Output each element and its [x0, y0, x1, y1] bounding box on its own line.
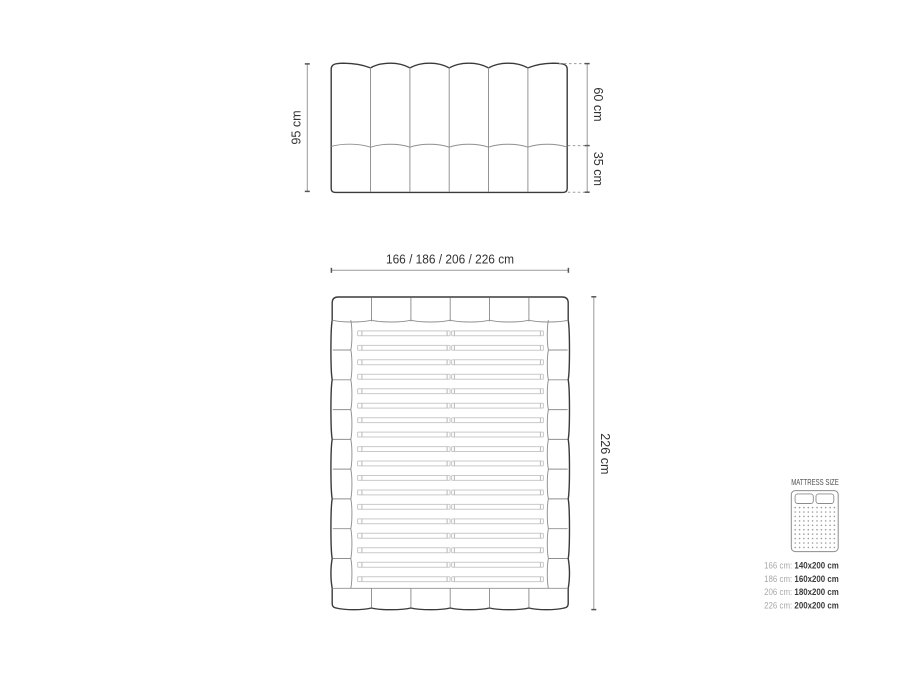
- svg-text:35 cm: 35 cm: [591, 152, 606, 186]
- svg-text:206 cm: 180x200 cm: 206 cm: 180x200 cm: [764, 587, 839, 598]
- svg-text:MATTRESS SIZE: MATTRESS SIZE: [791, 477, 839, 487]
- svg-text:166 / 186 / 206 / 226 cm: 166 / 186 / 206 / 226 cm: [386, 252, 514, 267]
- svg-text:60 cm: 60 cm: [591, 87, 606, 121]
- svg-text:95 cm: 95 cm: [288, 110, 303, 144]
- svg-text:226 cm: 200x200 cm: 226 cm: 200x200 cm: [764, 600, 839, 611]
- svg-text:226 cm: 226 cm: [598, 433, 613, 474]
- svg-text:186 cm: 160x200 cm: 186 cm: 160x200 cm: [764, 573, 839, 584]
- svg-text:166 cm: 140x200 cm: 166 cm: 140x200 cm: [764, 560, 839, 571]
